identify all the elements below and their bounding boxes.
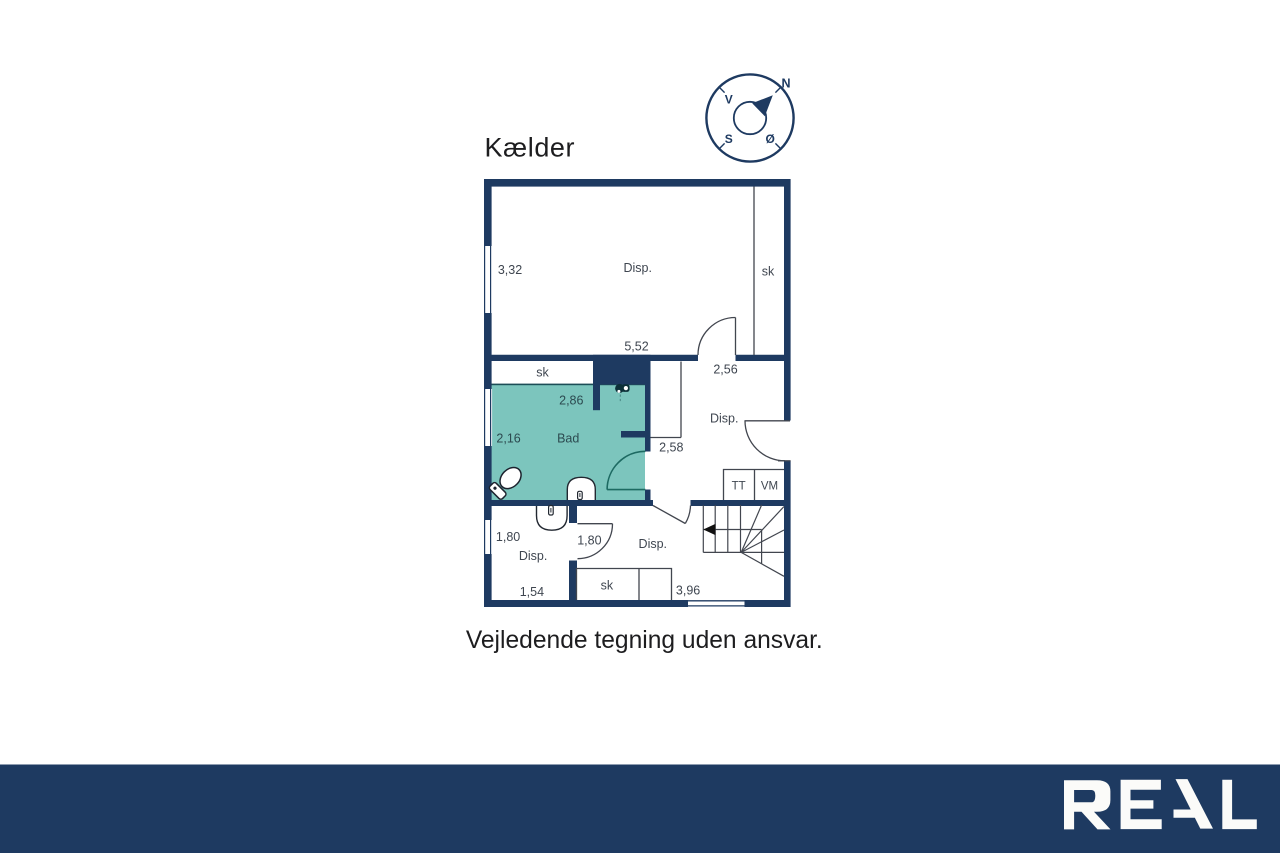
svg-text:2,86: 2,86 bbox=[559, 393, 583, 407]
svg-text:S: S bbox=[725, 132, 733, 146]
svg-text:Bad: Bad bbox=[557, 432, 579, 446]
svg-text:VM: VM bbox=[761, 480, 778, 492]
svg-text:3,96: 3,96 bbox=[676, 584, 700, 598]
svg-text:sk: sk bbox=[536, 365, 549, 379]
svg-text:TT: TT bbox=[732, 480, 746, 492]
svg-text:1,54: 1,54 bbox=[520, 585, 544, 599]
svg-text:sk: sk bbox=[601, 579, 614, 593]
svg-text:3,32: 3,32 bbox=[498, 263, 522, 277]
svg-text:1,80: 1,80 bbox=[577, 534, 601, 548]
svg-text:Ø: Ø bbox=[766, 132, 775, 146]
svg-text:N: N bbox=[781, 76, 790, 90]
svg-text:Disp.: Disp. bbox=[623, 261, 651, 275]
svg-text:2,16: 2,16 bbox=[496, 432, 520, 446]
svg-text:Kælder: Kælder bbox=[485, 133, 576, 163]
svg-text:sk: sk bbox=[762, 264, 775, 278]
svg-text:2,58: 2,58 bbox=[659, 441, 683, 455]
svg-text:Disp.: Disp. bbox=[710, 411, 738, 425]
svg-text:2,56: 2,56 bbox=[713, 363, 737, 377]
svg-text:Disp.: Disp. bbox=[639, 537, 667, 551]
svg-text:Vejledende tegning uden ansvar: Vejledende tegning uden ansvar. bbox=[466, 627, 823, 654]
svg-text:Disp.: Disp. bbox=[519, 549, 547, 563]
svg-text:5,52: 5,52 bbox=[624, 340, 648, 354]
svg-text:1,80: 1,80 bbox=[496, 530, 520, 544]
svg-text:V: V bbox=[725, 93, 733, 107]
